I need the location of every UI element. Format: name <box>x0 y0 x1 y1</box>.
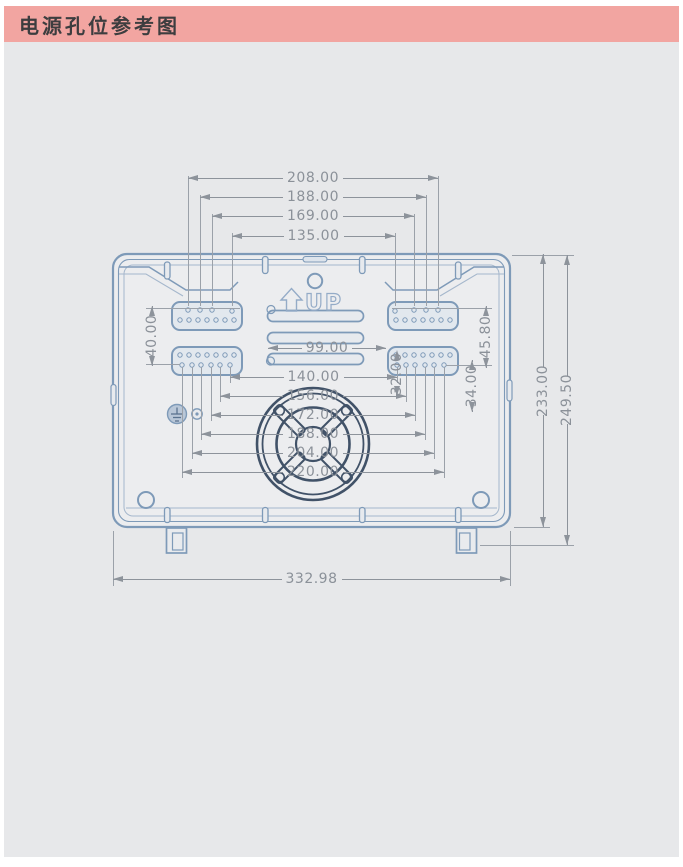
extension-line <box>200 195 201 306</box>
dim-height-233: 233.00 <box>535 254 551 527</box>
extension-line <box>444 367 445 478</box>
extension-line <box>480 545 574 546</box>
extension-line <box>414 214 415 306</box>
bottom-tab <box>360 508 366 523</box>
up-label: UP <box>305 291 343 316</box>
dimension-label: 233.00 <box>535 365 551 417</box>
top-tab <box>165 262 171 279</box>
extension-line <box>438 176 439 306</box>
connector-block-top-right <box>388 302 458 330</box>
bottom-tab <box>456 508 462 523</box>
left-wall-slot <box>111 385 116 406</box>
extension-line <box>188 176 189 306</box>
top-tab <box>360 257 366 274</box>
top-tab <box>456 262 462 279</box>
bottom-tab <box>263 508 269 523</box>
dim-height-249-5: 249.50 <box>559 255 575 545</box>
extension-line <box>415 367 416 421</box>
right-wall-slot <box>507 380 512 401</box>
foot-right <box>457 528 477 553</box>
dimension-label: 188.00 <box>283 189 343 205</box>
dim-width-99: 99.00 <box>268 340 386 356</box>
extension-line <box>392 308 492 309</box>
dimension-label: 220.00 <box>283 464 343 480</box>
dim-width-172: 172.00 <box>211 407 415 423</box>
extension-line <box>212 214 213 306</box>
extension-line <box>395 233 396 306</box>
page: 电源孔位参考图 <box>0 0 683 867</box>
dim-width-208: 208.00 <box>188 170 438 186</box>
dimension-label: 169.00 <box>283 208 343 224</box>
extension-line <box>514 527 550 528</box>
dimension-label: 332.98 <box>282 571 342 587</box>
extension-line <box>425 367 426 440</box>
dimension-label: 140.00 <box>284 369 344 385</box>
dim-height-34: 34.00 <box>464 360 480 412</box>
dim-width-188b: 188.00 <box>201 426 425 442</box>
dimension-label: 208.00 <box>283 170 343 186</box>
foot-left <box>167 528 187 553</box>
dim-width-204: 204.00 <box>192 445 434 461</box>
small-hole-center <box>195 412 198 415</box>
dim-height-45-8: 45.80 <box>478 306 494 368</box>
dimension-label: 156.00 <box>283 388 343 404</box>
ground-symbol-icon <box>168 405 187 424</box>
dimension-label: 45.80 <box>478 316 494 359</box>
extension-line <box>510 531 511 586</box>
dim-width-169: 169.00 <box>212 208 414 224</box>
extension-line <box>426 195 427 306</box>
dimension-label: 32.00 <box>389 353 405 396</box>
dim-width-332: 332.98 <box>113 571 510 587</box>
extension-line <box>146 308 240 309</box>
bottom-tab <box>165 508 171 523</box>
dimension-label: 99.00 <box>302 340 353 356</box>
dim-width-220: 220.00 <box>182 464 444 480</box>
dimension-label: 249.50 <box>559 374 575 426</box>
dimension-label: 204.00 <box>283 445 343 461</box>
dimension-label: 172.00 <box>283 407 343 423</box>
dimension-label: 135.00 <box>284 228 344 244</box>
dimension-label: 188.00 <box>283 426 343 442</box>
extension-line <box>182 367 183 478</box>
connector-block-top-left <box>172 302 242 330</box>
extension-line <box>434 367 435 459</box>
dim-width-135: 135.00 <box>232 228 395 244</box>
dim-height-40: 40.00 <box>144 306 160 366</box>
dim-width-140: 140.00 <box>230 369 397 385</box>
dim-width-188: 188.00 <box>200 189 426 205</box>
top-tab <box>263 257 269 274</box>
dimension-label: 40.00 <box>144 315 160 358</box>
extension-line <box>406 367 407 402</box>
dimension-label: 34.00 <box>464 365 480 408</box>
dim-width-156: 156.00 <box>220 388 406 404</box>
dim-height-32: 32.00 <box>389 350 405 396</box>
top-center-slot <box>303 257 327 263</box>
